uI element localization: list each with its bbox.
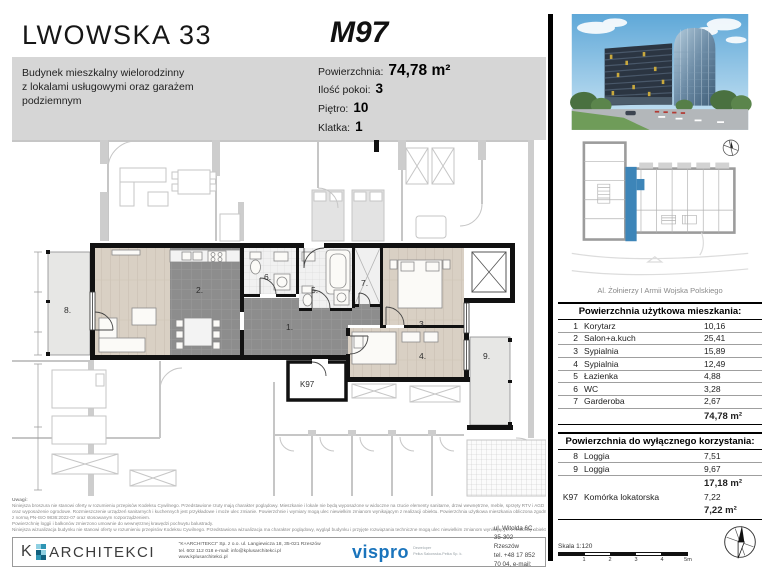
exclusive-area-table: Powierzchnia do wyłącznego korzystania: …: [558, 432, 762, 520]
left-building: [605, 43, 672, 105]
exclusive-table-title: Powierzchnia do wyłącznego korzystania:: [558, 434, 762, 450]
scale-ticks: 12345m: [558, 556, 688, 564]
spec-staircase: Klatka: 1: [318, 119, 450, 137]
exclusive-table-body: 8Loggia7,519Loggia9,67: [558, 450, 762, 475]
storage-total-row: 7,22 m²: [558, 503, 762, 519]
svg-text:1.: 1.: [286, 322, 293, 332]
svg-text:5.: 5.: [311, 285, 318, 295]
dimension-lines: [34, 252, 42, 490]
usable-table-body: 1Korytarz10,162Salon+a.kuch25,413Sypialn…: [558, 320, 762, 408]
karchitekci-logo: K ARCHITEKCI: [21, 543, 171, 561]
table-row: 5Łazienka4,88: [558, 371, 762, 384]
unit-code: M97: [330, 16, 388, 50]
footer: K ARCHITEKCI "K+ARCHITEKCI" Sp. z o.o. u…: [12, 537, 546, 567]
table-row: 6WC3,28: [558, 383, 762, 396]
disclaimer-lines: Niniejsza broszura nie stanowi oferty w …: [12, 503, 546, 533]
title-band: LWOWSKA 33 M97: [12, 14, 546, 57]
spec-area: Powierzchnia: 74,78 m²: [318, 62, 450, 80]
svg-text:2.: 2.: [196, 285, 203, 295]
building-description: Budynek mieszkalny wielorodzinnyz lokala…: [22, 66, 194, 109]
usable-table-title: Powierzchnia użytkowa mieszkania:: [558, 304, 762, 320]
right-tower: [674, 28, 716, 106]
disclaimer: Uwagi: Niniejsza broszura nie stanowi of…: [12, 498, 546, 533]
vispro-logo: vispro DeweloperPełka Sakowska-Pełka Sp.…: [352, 542, 486, 563]
floor-plan: 1. 2. 3. 4. 5. 6. 7. 8. 9. K97: [12, 140, 546, 497]
brochure-page: LWOWSKA 33 M97 Budynek mieszkalny wielor…: [0, 0, 770, 570]
table-row: 9Loggia9,67: [558, 463, 762, 476]
svg-text:4.: 4.: [419, 351, 426, 361]
storage-total-value: 7,22 m²: [704, 505, 760, 517]
compass-icon: [718, 520, 762, 564]
site-plan: [558, 134, 762, 286]
spec-floor: Piętro: 10: [318, 100, 450, 118]
vertical-divider: [548, 14, 553, 561]
svg-text:6.: 6.: [264, 272, 271, 282]
scale-bar: Skala 1:120 12345m: [558, 543, 698, 564]
table-row: 7Garderoba2,67: [558, 396, 762, 409]
unit-specs: Powierzchnia: 74,78 m² Ilość pokoi: 3 Pi…: [318, 62, 450, 138]
karchitekci-pixel-icon: [36, 544, 47, 560]
table-row: 4Sypialnia12,49: [558, 358, 762, 371]
svg-text:K97: K97: [300, 380, 315, 389]
building-photo: [558, 14, 762, 130]
table-row: 1Korytarz10,16: [558, 320, 762, 333]
project-title: LWOWSKA 33: [22, 20, 212, 51]
storage-room-k97: [288, 359, 346, 400]
street-label: Al. Żołnierzy I Armii Wojska Polskiego: [558, 286, 762, 295]
right-panel: Al. Żołnierzy I Armii Wojska Polskiego P…: [558, 14, 762, 566]
usable-total-row: 74,78 m²: [558, 409, 762, 425]
table-row: 8Loggia7,51: [558, 450, 762, 463]
vispro-tagline: DeweloperPełka Sakowska-Pełka Sp. k.: [413, 546, 462, 557]
storage-row: K97 Komórka lokatorska 7,22: [558, 492, 762, 504]
spec-rooms: Ilość pokoi: 3: [318, 81, 450, 99]
svg-text:7.: 7.: [361, 278, 368, 288]
scale-label: Skala 1:120: [558, 543, 698, 550]
svg-text:3.: 3.: [419, 319, 426, 329]
scale-and-compass: Skala 1:120 12345m: [558, 520, 762, 566]
table-row: 2Salon+a.kuch25,41: [558, 333, 762, 346]
usable-area-table: Powierzchnia użytkowa mieszkania: 1Koryt…: [558, 302, 762, 425]
exclusive-subtotal-value: 17,18 m²: [704, 478, 760, 490]
exclusive-subtotal-row: 17,18 m²: [558, 476, 762, 492]
table-row: 3Sypialnia15,89: [558, 345, 762, 358]
svg-text:9.: 9.: [483, 351, 490, 361]
header-panel: Budynek mieszkalny wielorodzinnyz lokala…: [12, 57, 546, 140]
karchitekci-contact: "K+ARCHITEKCI" Sp. z o.o. ul. Langiewicz…: [179, 542, 344, 563]
usable-total-value: 74,78 m²: [704, 411, 760, 423]
vispro-contact: ul. Witolda 6C, 35-302 Rzeszówtel. +48 1…: [494, 525, 537, 570]
svg-text:8.: 8.: [64, 305, 71, 315]
terrace-hatch: [467, 440, 546, 496]
highlighted-unit: [625, 167, 636, 241]
